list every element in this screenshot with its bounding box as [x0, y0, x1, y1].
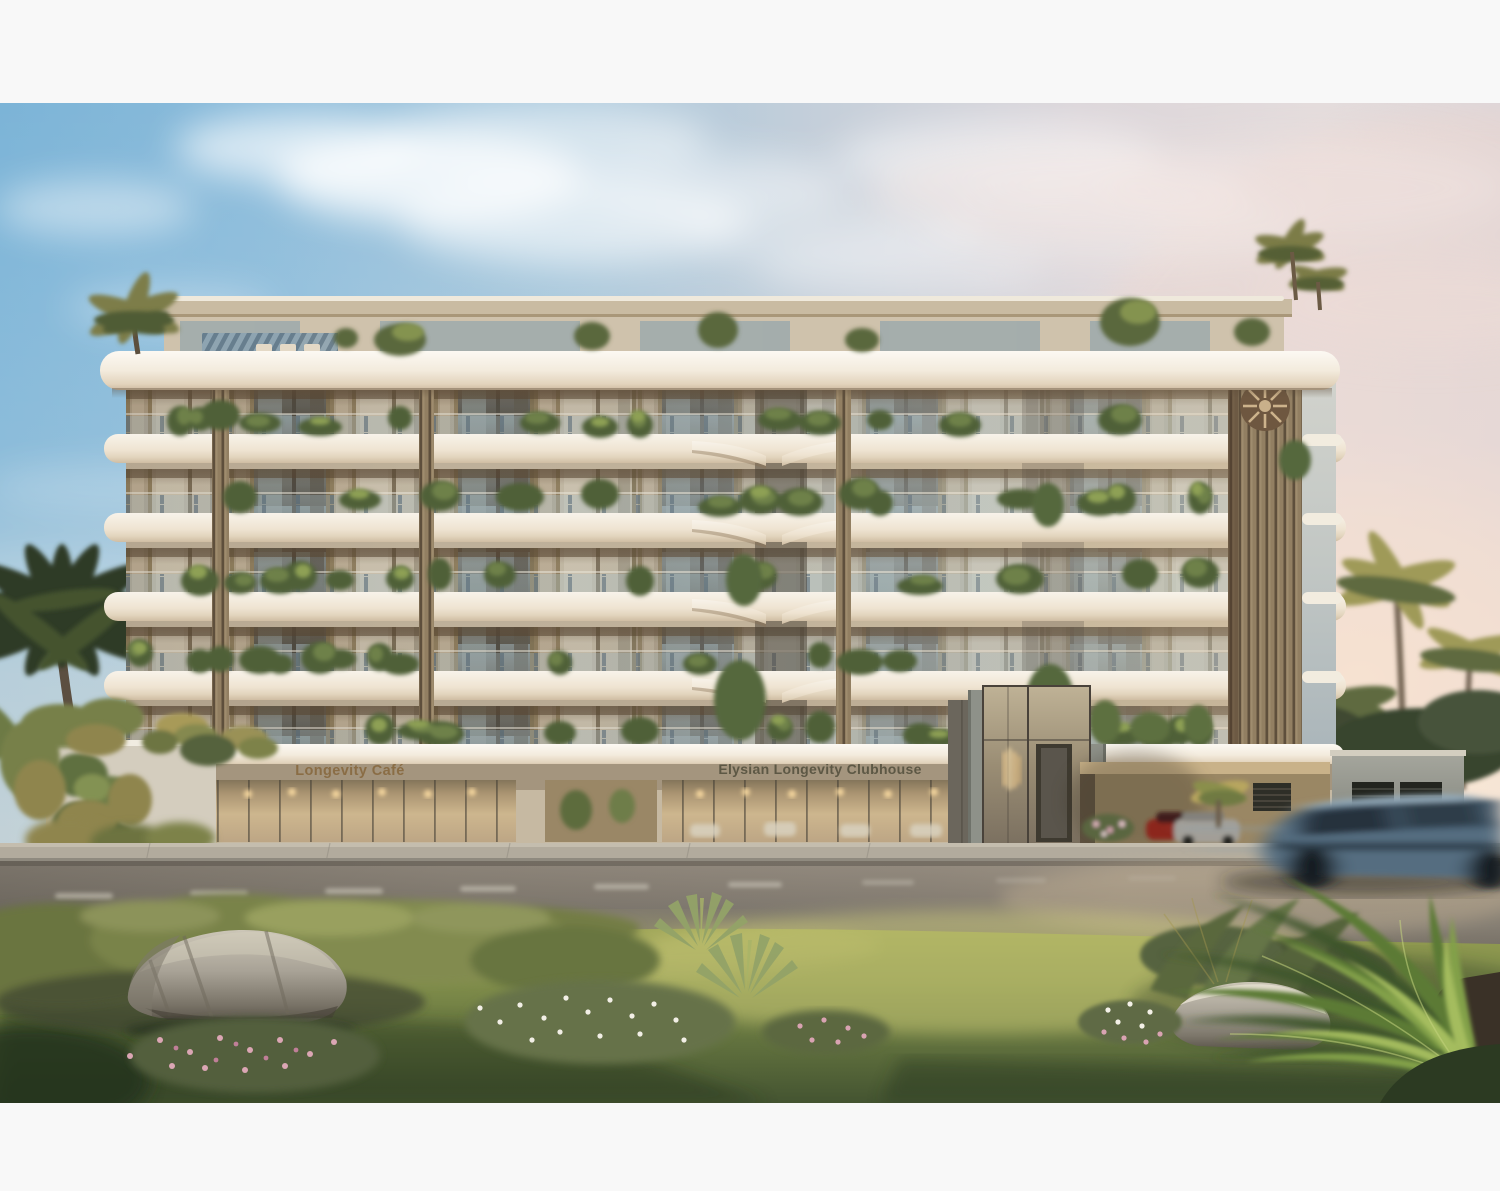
svg-text:Longevity Café: Longevity Café — [295, 763, 405, 779]
svg-text:Elysian Longevity Clubhouse: Elysian Longevity Clubhouse — [718, 761, 921, 777]
